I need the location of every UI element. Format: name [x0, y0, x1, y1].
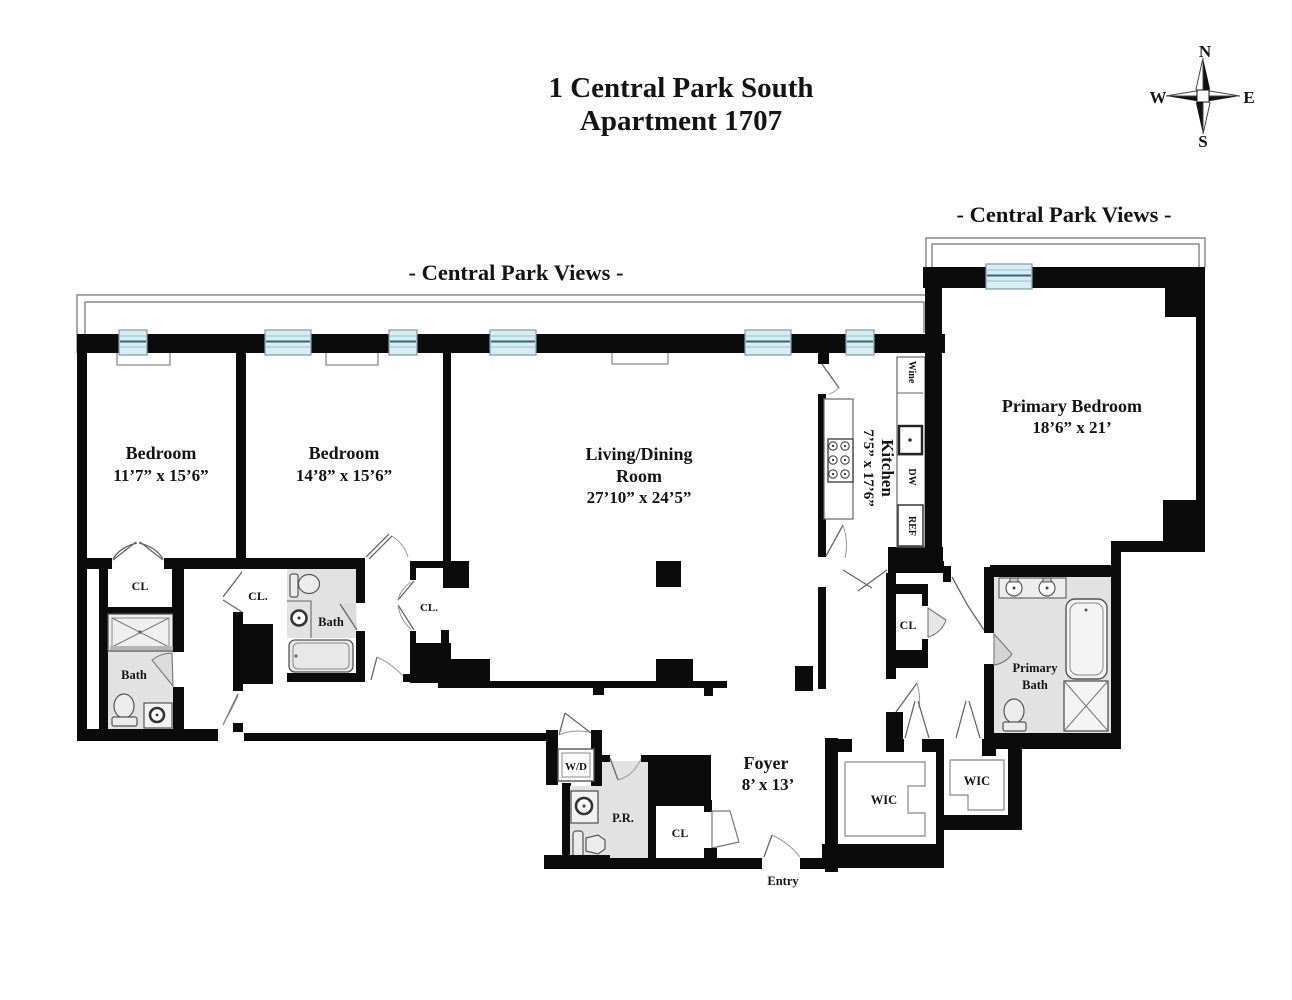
svg-text:Living/Dining: Living/Dining — [585, 444, 692, 464]
svg-text:S: S — [1198, 132, 1207, 151]
svg-text:Kitchen: Kitchen — [878, 439, 897, 497]
svg-text:11’7” x 15’6”: 11’7” x 15’6” — [113, 466, 208, 485]
svg-text:Bedroom: Bedroom — [309, 443, 380, 463]
svg-text:P.R.: P.R. — [612, 811, 634, 825]
svg-text:Primary: Primary — [1012, 661, 1058, 675]
svg-text:REF: REF — [906, 516, 917, 536]
svg-text:DW: DW — [906, 468, 917, 485]
svg-text:- Central Park Views -: - Central Park Views - — [409, 260, 624, 285]
svg-text:Room: Room — [616, 466, 662, 486]
svg-text:14’8” x 15’6”: 14’8” x 15’6” — [296, 466, 392, 485]
svg-text:Bedroom: Bedroom — [126, 443, 197, 463]
svg-text:CL: CL — [132, 579, 149, 593]
svg-text:1 Central Park South: 1 Central Park South — [548, 72, 813, 104]
svg-text:WIC: WIC — [964, 774, 990, 788]
svg-text:CL.: CL. — [420, 602, 438, 614]
svg-text:Bath: Bath — [1022, 678, 1048, 692]
svg-text:Foyer: Foyer — [744, 753, 789, 773]
svg-text:8’ x 13’: 8’ x 13’ — [742, 775, 795, 794]
svg-text:18’6” x 21’: 18’6” x 21’ — [1032, 418, 1111, 437]
svg-text:CL: CL — [900, 618, 917, 632]
svg-text:CL.: CL. — [248, 589, 268, 603]
svg-text:Entry: Entry — [767, 874, 799, 888]
svg-text:7’5” x 17’6”: 7’5” x 17’6” — [860, 429, 876, 507]
svg-text:27’10” x 24’5”: 27’10” x 24’5” — [587, 488, 692, 507]
svg-text:Bath: Bath — [318, 615, 344, 629]
svg-text:E: E — [1243, 88, 1254, 107]
svg-text:CL: CL — [672, 826, 689, 840]
svg-text:N: N — [1199, 42, 1212, 61]
svg-text:W: W — [1150, 88, 1167, 107]
svg-text:- Central Park Views -: - Central Park Views - — [957, 202, 1172, 227]
svg-text:W/D: W/D — [565, 761, 587, 773]
svg-text:Bath: Bath — [121, 668, 147, 682]
svg-text:Apartment 1707: Apartment 1707 — [580, 105, 782, 137]
svg-text:WIC: WIC — [871, 793, 897, 807]
svg-text:Primary Bedroom: Primary Bedroom — [1002, 396, 1142, 416]
svg-text:Wine: Wine — [906, 361, 917, 384]
